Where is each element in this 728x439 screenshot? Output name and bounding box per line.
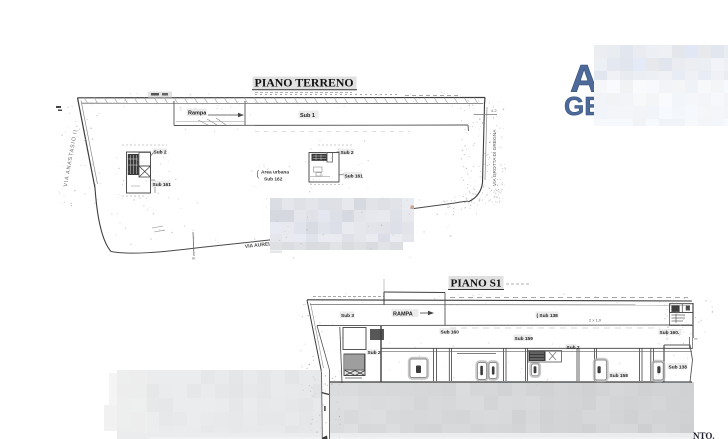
svg-text:Sub 2: Sub 2 [567, 345, 580, 351]
svg-text:Sub 2: Sub 2 [341, 150, 354, 156]
svg-text:( Sub 138: ( Sub 138 [537, 313, 559, 319]
svg-text:Sub 2: Sub 2 [368, 350, 381, 356]
svg-text:4.2: 4.2 [491, 108, 497, 113]
svg-text:Sub 158: Sub 158 [610, 373, 629, 379]
svg-text:PIANO S1: PIANO S1 [451, 278, 502, 290]
svg-text:Sub 2: Sub 2 [154, 150, 167, 156]
svg-text:Sub 160: Sub 160 [441, 330, 460, 336]
svg-text:Sub 162: Sub 162 [264, 177, 283, 183]
svg-text:Sub 1: Sub 1 [300, 113, 315, 119]
svg-text:Sub 138: Sub 138 [669, 365, 688, 371]
svg-text:VIA ANASTASIO II: VIA ANASTASIO II [63, 129, 79, 187]
svg-text:NTO.: NTO. [693, 431, 715, 439]
svg-text:VIA GROTTA DI GREGNA: VIA GROTTA DI GREGNA [492, 129, 498, 186]
svg-text:PIANO TERRENO: PIANO TERRENO [255, 78, 354, 90]
svg-text:m: m [192, 256, 196, 261]
svg-text:Rampa: Rampa [188, 111, 207, 117]
svg-text:Sub 159: Sub 159 [515, 336, 534, 342]
svg-text:Sub 160.: Sub 160. [660, 330, 680, 336]
svg-text:Area urbana: Area urbana [261, 170, 289, 176]
svg-text:Sub 161: Sub 161 [153, 182, 172, 188]
svg-text:2 x 1,0: 2 x 1,0 [589, 318, 602, 323]
svg-text:Sub 3: Sub 3 [341, 313, 354, 319]
svg-text:RAMPA: RAMPA [393, 312, 413, 318]
